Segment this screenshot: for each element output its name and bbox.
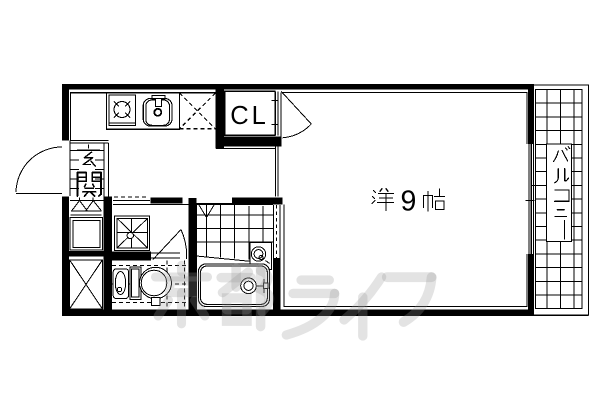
svg-text:9: 9: [401, 186, 417, 218]
svg-text:CL: CL: [230, 102, 269, 130]
